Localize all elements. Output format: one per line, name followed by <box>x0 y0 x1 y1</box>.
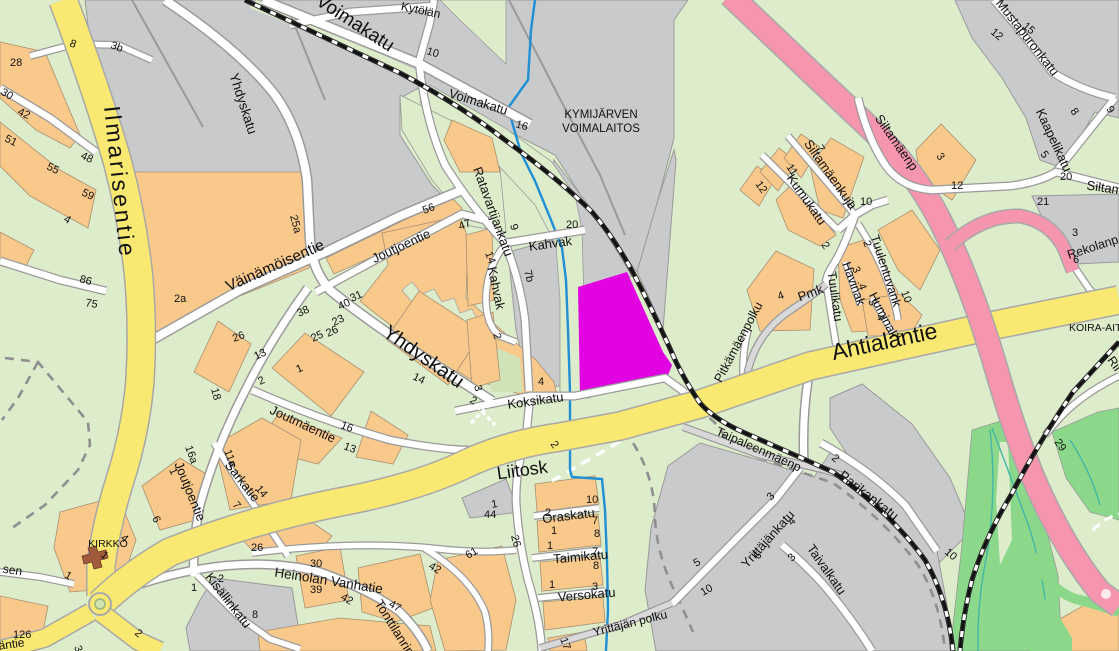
svg-text:30: 30 <box>310 558 322 570</box>
svg-text:10: 10 <box>860 196 872 208</box>
svg-text:2: 2 <box>545 507 551 519</box>
svg-text:3: 3 <box>1072 227 1078 239</box>
svg-text:20: 20 <box>566 219 578 231</box>
svg-text:8: 8 <box>252 609 258 621</box>
svg-text:28: 28 <box>10 57 22 69</box>
svg-text:4: 4 <box>538 376 544 388</box>
svg-text:75: 75 <box>84 297 98 311</box>
svg-text:39: 39 <box>310 584 322 596</box>
svg-text:1: 1 <box>547 540 553 552</box>
svg-text:7: 7 <box>592 546 598 558</box>
svg-text:3: 3 <box>592 581 598 593</box>
svg-text:KOIRA-AITA: KOIRA-AITA <box>1069 322 1119 334</box>
svg-text:20: 20 <box>1060 171 1072 183</box>
svg-text:sen: sen <box>2 562 23 579</box>
svg-text:2a: 2a <box>174 293 187 305</box>
svg-text:KYMIJÄRVEN: KYMIJÄRVEN <box>564 109 637 121</box>
svg-text:VOIMALAITOS: VOIMALAITOS <box>562 123 640 135</box>
svg-text:10: 10 <box>586 494 598 506</box>
svg-text:44: 44 <box>484 509 496 521</box>
svg-text:7: 7 <box>592 515 598 527</box>
svg-text:1: 1 <box>549 579 555 591</box>
svg-text:8: 8 <box>593 560 599 572</box>
svg-text:1: 1 <box>191 582 197 594</box>
svg-text:126: 126 <box>13 629 31 641</box>
svg-text:12: 12 <box>951 180 963 192</box>
svg-text:6: 6 <box>1073 254 1079 266</box>
svg-text:1: 1 <box>551 525 557 537</box>
svg-text:2: 2 <box>218 573 224 585</box>
svg-text:8: 8 <box>594 528 600 540</box>
svg-text:21: 21 <box>1037 196 1049 208</box>
svg-text:26: 26 <box>251 542 263 554</box>
